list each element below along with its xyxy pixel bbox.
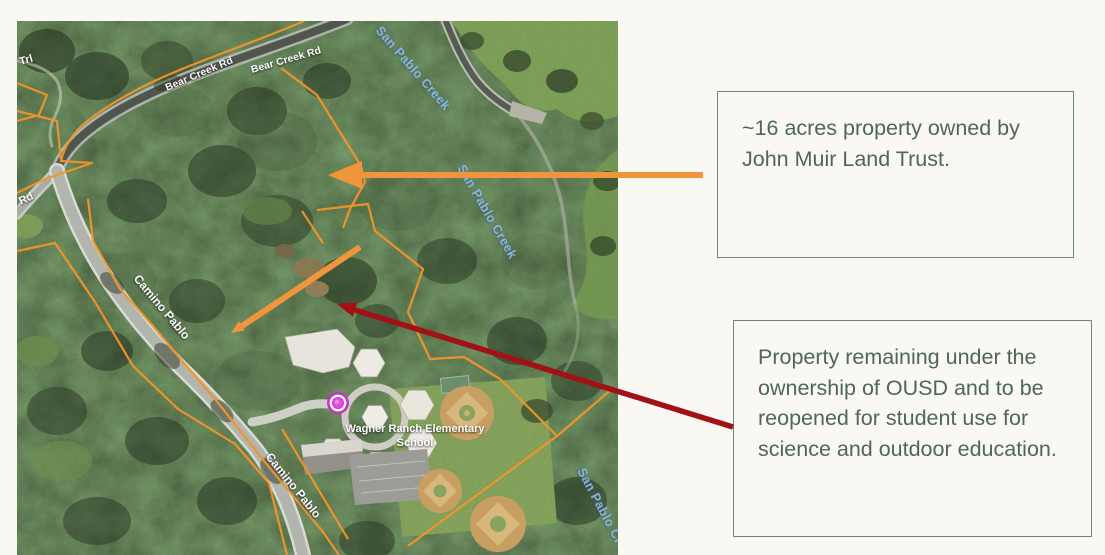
school-label-line2: School (397, 437, 434, 449)
satellite-map-canvas: or Trl Bear Creek Rd Bear Creek Rd n Rd … (17, 21, 618, 555)
callout-ousd-text: Property remaining under the ownership o… (758, 345, 1057, 461)
school-label-line1: Wagner Ranch Elementary (346, 423, 486, 435)
school-marker (327, 392, 349, 414)
baseball-field (470, 496, 526, 552)
satellite-map: or Trl Bear Creek Rd Bear Creek Rd n Rd … (17, 21, 618, 555)
callout-jmlt-box: ~16 acres property owned by John Muir La… (717, 91, 1074, 258)
baseball-field (418, 469, 462, 513)
callout-ousd-box: Property remaining under the ownership o… (733, 320, 1092, 537)
callout-jmlt-text: ~16 acres property owned by John Muir La… (742, 116, 1020, 171)
